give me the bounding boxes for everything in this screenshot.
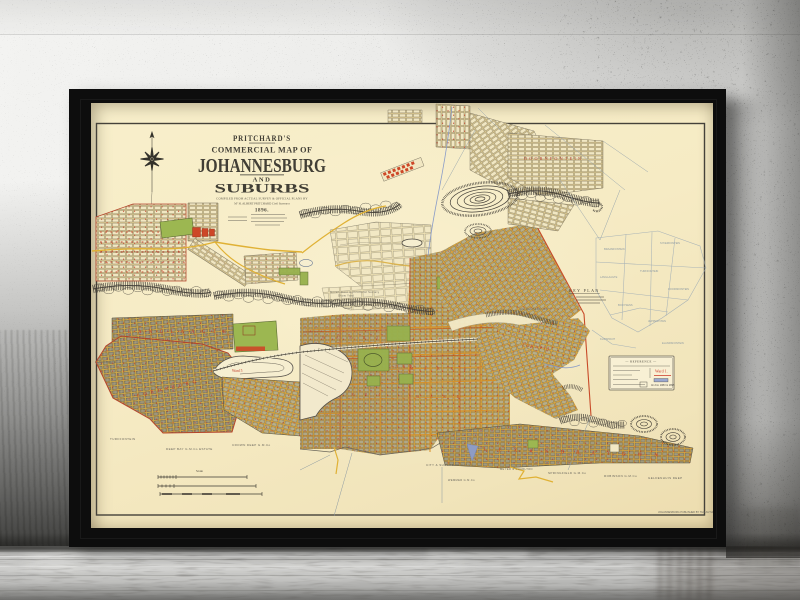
svg-text:WEMMER G.M.Co: WEMMER G.M.Co: [448, 478, 475, 482]
svg-text:PRITCHARD'S: PRITCHARD'S: [233, 134, 291, 143]
svg-text:SPRINGFIELD G.M.Co: SPRINGFIELD G.M.Co: [548, 471, 586, 475]
svg-text:DOORNFONTEIN: DOORNFONTEIN: [668, 287, 689, 291]
svg-text:Scale: Scale: [196, 469, 203, 473]
svg-text:M A R K E T: M A R K E T: [410, 367, 484, 371]
svg-text:W A R D 1: W A R D 1: [416, 395, 477, 399]
svg-text:DOORNFONTEIN: DOORNFONTEIN: [524, 156, 583, 161]
svg-text:KLIPSPRUIT: KLIPSPRUIT: [600, 337, 616, 341]
svg-text:Ward 5: Ward 5: [232, 369, 243, 373]
svg-text:Show Yard: Show Yard: [338, 294, 354, 298]
svg-text:BOOYSENS: BOOYSENS: [618, 303, 633, 307]
svg-text:KEY PLAN: KEY PLAN: [569, 288, 600, 293]
svg-text:Ward 1.: Ward 1.: [655, 369, 668, 374]
svg-text:CROWN DEEP G.M.Co: CROWN DEEP G.M.Co: [232, 443, 271, 447]
svg-text:Government Agricultural Societ: Government Agricultural Society: [330, 290, 380, 294]
svg-text:MEYER & CHARLTON: MEYER & CHARLTON: [500, 467, 533, 471]
svg-text:ELANDSFONTEIN: ELANDSFONTEIN: [662, 341, 684, 345]
svg-text:DEEP BAY G.M.Co ESTATE: DEEP BAY G.M.Co ESTATE: [166, 447, 213, 451]
svg-text:LANGLAAGTE: LANGLAAGTE: [95, 360, 116, 364]
svg-text:HEIDELBERG RD: HEIDELBERG RD: [520, 307, 548, 311]
svg-text:GELDENHUIS DEEP: GELDENHUIS DEEP: [648, 476, 683, 480]
svg-text:— REFERENCE —: — REFERENCE —: [624, 360, 657, 364]
svg-text:JOHANNESBURG PUBLISHED BY THE: JOHANNESBURG PUBLISHED BY THE AUTHOR: [658, 510, 713, 514]
svg-text:SYFERFONTEIN: SYFERFONTEIN: [660, 241, 680, 245]
svg-text:TURFFONTEIN: TURFFONTEIN: [110, 437, 136, 441]
svg-text:JOHANNESBURG: JOHANNESBURG: [198, 156, 326, 177]
svg-text:1896.: 1896.: [255, 209, 269, 214]
svg-text:ROBINSON G.M.Co: ROBINSON G.M.Co: [604, 474, 637, 478]
svg-text:TURFFONTEIN: TURFFONTEIN: [640, 269, 658, 273]
svg-text:BRAAMFONTEIN: BRAAMFONTEIN: [604, 247, 625, 251]
svg-text:4in Km 1883 & 1895: 4in Km 1883 & 1895: [651, 383, 675, 387]
svg-text:SUBURBS: SUBURBS: [215, 181, 310, 196]
svg-text:CITY & SUBURBAN G.M.Co: CITY & SUBURBAN G.M.Co: [426, 463, 473, 467]
svg-text:COMPILED FROM ACTUAL SURVEY &: COMPILED FROM ACTUAL SURVEY & OFFICIAL P…: [216, 197, 308, 201]
svg-text:JEPPESTOWN: JEPPESTOWN: [648, 319, 666, 323]
svg-text:COMMERCIAL MAP OF: COMMERCIAL MAP OF: [212, 145, 313, 155]
svg-text:Mº H. ALBERT PRITCHARD Civil: Mº H. ALBERT PRITCHARD Civil Surveyor: [234, 202, 290, 206]
svg-text:LANGLAAGTE: LANGLAAGTE: [600, 275, 618, 279]
